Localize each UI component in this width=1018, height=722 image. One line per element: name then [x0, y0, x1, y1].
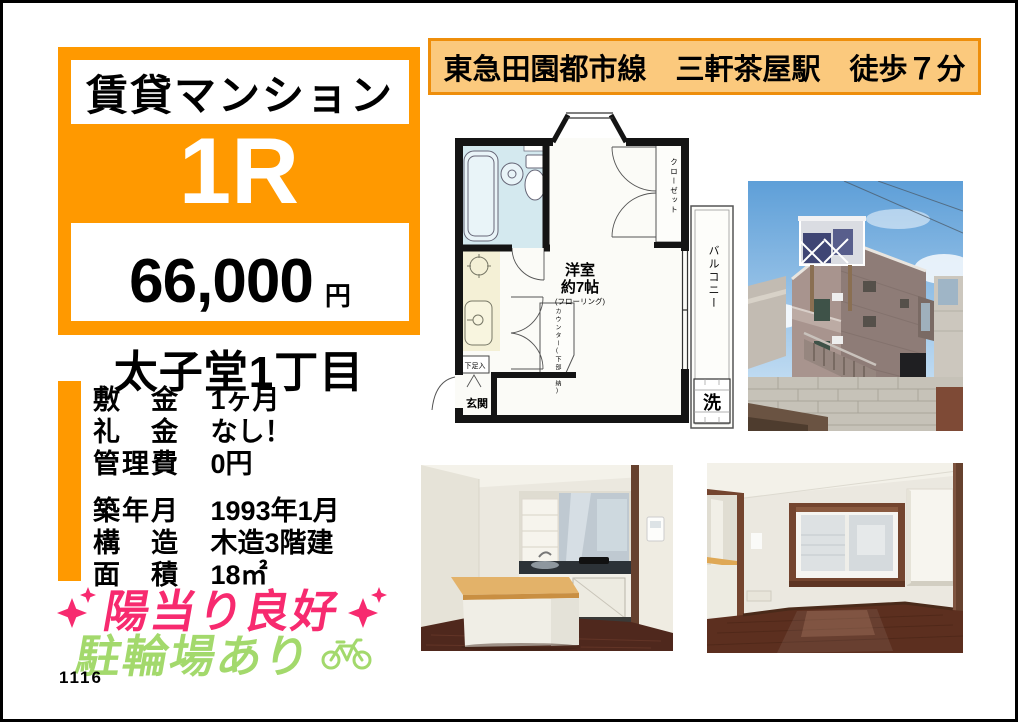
details-accent-bar — [58, 381, 81, 581]
layout-type: 1R — [58, 121, 420, 221]
price-panel: 賃貸マンション 1R 66,000 円 — [58, 47, 420, 335]
detail-value: 0円 — [211, 449, 253, 479]
plan-bathroom — [458, 141, 548, 248]
detail-row-built: 築年月 1993年1月 — [93, 495, 340, 527]
plan-counter-label: カウンター(下部収納) — [554, 308, 561, 396]
price-box: 66,000 円 — [71, 223, 409, 321]
feature-bicycle-label: 駐輪場あり — [71, 620, 317, 685]
property-category: 賃貸マンション — [86, 62, 394, 123]
feature-bicycle: 駐輪場あり — [69, 620, 374, 685]
rental-flyer: 賃貸マンション 1R 66,000 円 太子堂1丁目 敷 金 1ヶ月 礼 金 な… — [0, 0, 1018, 722]
detail-value: なし！ — [211, 417, 292, 447]
detail-value: 木造3階建 — [211, 528, 334, 558]
listing-code: 1116 — [59, 668, 103, 688]
plan-room-size: 約7帖 — [561, 278, 599, 296]
plan-washer-label: 洗 — [703, 392, 721, 413]
building-exterior-photo — [748, 181, 963, 431]
property-category-box: 賃貸マンション — [71, 60, 409, 124]
detail-label: 管理費 — [93, 448, 203, 480]
plan-kitchenette — [458, 248, 500, 351]
detail-label: 礼 金 — [93, 416, 203, 448]
price-value: 66,000 — [129, 251, 313, 313]
bicycle-icon — [320, 635, 374, 671]
plan-balcony: バルコニー 洗 — [691, 206, 733, 428]
plan-balcony-label: バルコニー — [707, 245, 720, 310]
plan-room-label: 洋室 — [565, 261, 595, 279]
detail-label: 築年月 — [93, 495, 203, 527]
details-list: 敷 金 1ヶ月 礼 金 なし！ 管理費 0円 築年月 1993年1月 構 造 木… — [93, 384, 340, 591]
plan-shoebox-label: 下足入 — [465, 362, 486, 370]
kitchen-photo — [421, 465, 673, 651]
floorplan: バルコニー 洗 カウ — [428, 107, 744, 447]
room-photo — [707, 463, 963, 653]
detail-value: 1ヶ月 — [211, 385, 280, 415]
plan-room-note: (フローリング) — [555, 296, 605, 306]
detail-row-structure: 構 造 木造3階建 — [93, 527, 340, 559]
access-banner: 東急田園都市線 三軒茶屋駅 徒歩７分 — [428, 38, 981, 95]
detail-label: 構 造 — [93, 527, 203, 559]
detail-row-deposit: 敷 金 1ヶ月 — [93, 384, 340, 416]
detail-row-managementfee: 管理費 0円 — [93, 448, 340, 480]
plan-entrance-label: 玄関 — [466, 396, 488, 410]
detail-label: 敷 金 — [93, 384, 203, 416]
detail-value: 1993年1月 — [211, 496, 340, 526]
plan-closet-label: クローゼット — [669, 158, 678, 215]
price-unit: 円 — [325, 283, 351, 313]
detail-row-keymoney: 礼 金 なし！ — [93, 416, 340, 448]
